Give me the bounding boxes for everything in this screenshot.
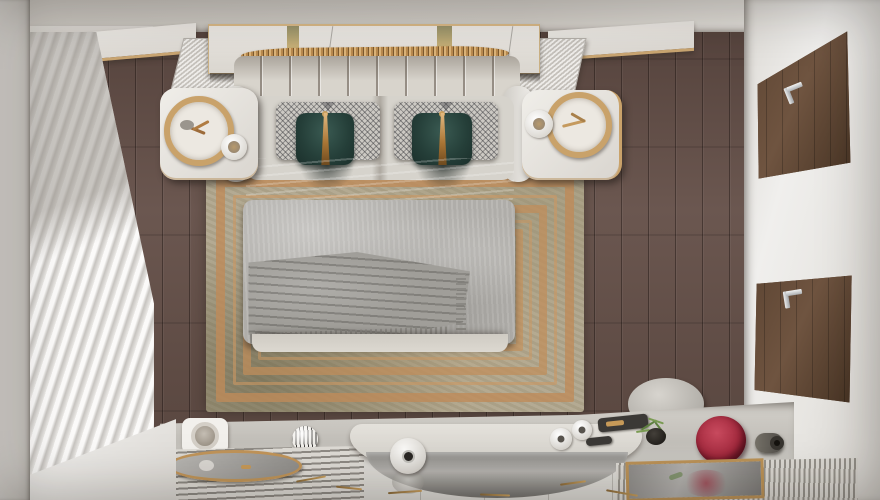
throw-fringe-right	[456, 272, 466, 330]
cup-interior	[228, 141, 240, 153]
red-vase	[696, 416, 746, 464]
bed-footboard	[252, 334, 508, 352]
dark-cylinder-vessel	[755, 433, 783, 453]
left-wall	[0, 0, 30, 500]
pillow-knot	[440, 102, 452, 111]
door-handle-bottom	[783, 288, 808, 309]
red-vase-reflection	[683, 469, 730, 497]
gold-mirror-tray-right	[626, 458, 765, 500]
plant-pot	[646, 428, 666, 445]
vase-mouth	[402, 450, 415, 463]
cup-left	[221, 134, 247, 160]
bedroom-top-view-render	[0, 0, 880, 500]
cup-right	[525, 110, 553, 138]
vase-mouth	[579, 427, 586, 434]
gray-vessel	[180, 120, 194, 130]
gold-object	[606, 420, 624, 427]
pillow-knot	[322, 102, 334, 111]
vessel-opening	[774, 440, 780, 446]
vase-mouth	[558, 436, 565, 443]
speaker-ring	[191, 422, 219, 450]
small-white-vase-1	[550, 428, 572, 450]
plant-reflection	[668, 471, 683, 480]
cup-interior	[533, 118, 545, 130]
tray-cup	[199, 460, 214, 471]
handle-bar	[786, 289, 803, 296]
gold-fleck	[241, 465, 251, 469]
white-round-vase	[390, 438, 426, 474]
ring-lamp-right	[546, 92, 612, 158]
oval-gold-mirror-tray	[168, 450, 302, 482]
